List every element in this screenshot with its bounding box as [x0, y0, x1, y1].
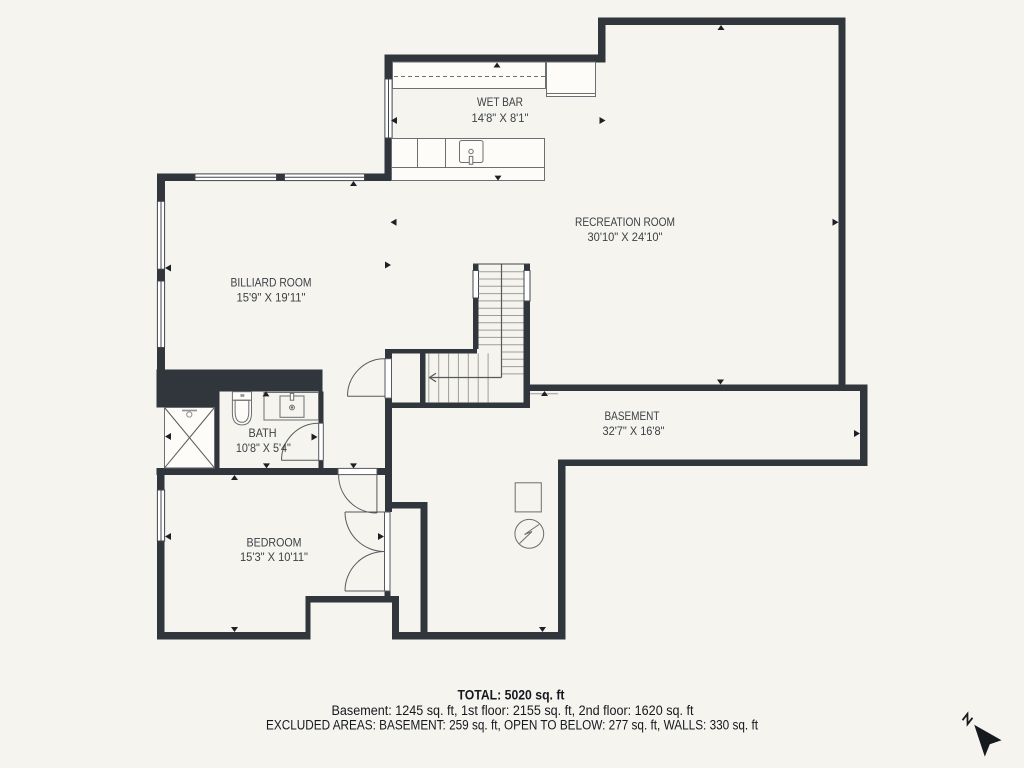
- svg-text:BEDROOM: BEDROOM: [247, 536, 302, 550]
- svg-text:14'8" X 8'1": 14'8" X 8'1": [472, 111, 529, 125]
- svg-text:10'8" X 5'4": 10'8" X 5'4": [236, 441, 291, 455]
- svg-text:WET BAR: WET BAR: [477, 95, 523, 109]
- svg-text:Basement: 1245 sq. ft, 1st flo: Basement: 1245 sq. ft, 1st floor: 2155 s…: [332, 703, 694, 718]
- svg-text:EXCLUDED AREAS: BASEMENT: 259: EXCLUDED AREAS: BASEMENT: 259 sq. ft, OP…: [266, 718, 758, 733]
- svg-text:15'9" X 19'11": 15'9" X 19'11": [237, 291, 306, 305]
- svg-text:BASEMENT: BASEMENT: [605, 409, 661, 423]
- svg-text:TOTAL: 5020 sq. ft: TOTAL: 5020 sq. ft: [458, 687, 565, 703]
- svg-text:32'7" X 16'8": 32'7" X 16'8": [603, 424, 665, 438]
- svg-text:RECREATION ROOM: RECREATION ROOM: [575, 215, 675, 229]
- svg-text:30'10" X 24'10": 30'10" X 24'10": [588, 230, 663, 244]
- svg-text:BATH: BATH: [249, 426, 277, 440]
- svg-text:BILLIARD ROOM: BILLIARD ROOM: [231, 276, 312, 290]
- svg-text:15'3" X 10'11": 15'3" X 10'11": [240, 550, 308, 564]
